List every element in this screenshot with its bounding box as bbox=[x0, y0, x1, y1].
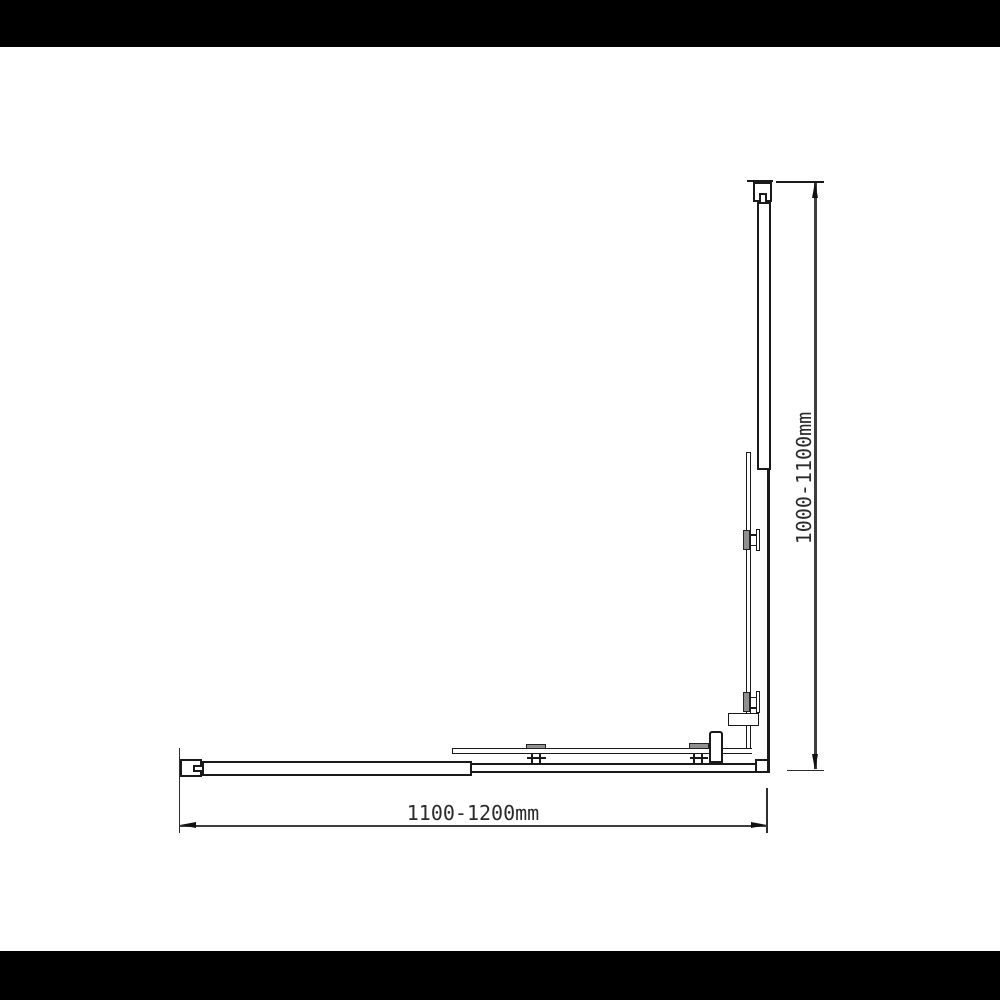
clampB-leg-right bbox=[701, 754, 703, 763]
technical-drawing-sheet: 1000-1100mm 1100-1200mm bbox=[0, 0, 1000, 1000]
clampA-leg-right bbox=[539, 754, 541, 763]
vertical-dim-extension-bottom bbox=[787, 770, 824, 772]
vertical-rail bbox=[767, 470, 770, 760]
vertical-door-stile bbox=[757, 202, 771, 470]
vertical-dim-label: 1000-1100mm bbox=[793, 403, 817, 553]
clampA-crossbar bbox=[527, 757, 546, 759]
corner-handle-block bbox=[709, 731, 723, 763]
letterbox-bottom bbox=[0, 951, 1000, 1000]
corner-connector-tab bbox=[728, 713, 759, 726]
clampB-pad bbox=[689, 743, 709, 749]
letterbox-top bbox=[0, 0, 1000, 47]
horizontal-rail bbox=[472, 763, 756, 773]
clampA-pad bbox=[526, 744, 546, 749]
horizontal-glass-panel bbox=[452, 748, 752, 754]
horizontal-dim-label: 1100-1200mm bbox=[398, 802, 548, 824]
clamp2-pad bbox=[743, 692, 750, 712]
clampB-crossbar bbox=[690, 757, 709, 759]
clampA-leg-left bbox=[531, 754, 533, 763]
corner-foot-block bbox=[755, 759, 771, 773]
clamp1-bracket bbox=[756, 529, 761, 551]
vertical-dim-arrow-up-icon bbox=[812, 182, 818, 198]
horizontal-dim-arrow-left-icon bbox=[180, 822, 196, 828]
clampB-leg-left bbox=[693, 754, 695, 763]
left-wall-profile-notch bbox=[193, 765, 203, 772]
clamp2-bracket bbox=[756, 691, 761, 713]
top-wall-profile-notch bbox=[759, 193, 767, 202]
clamp1-pad bbox=[743, 530, 750, 550]
horizontal-dim-arrow-right-icon bbox=[751, 822, 767, 828]
horizontal-door-rail bbox=[202, 761, 472, 776]
vertical-dim-arrow-down-icon bbox=[812, 754, 818, 770]
